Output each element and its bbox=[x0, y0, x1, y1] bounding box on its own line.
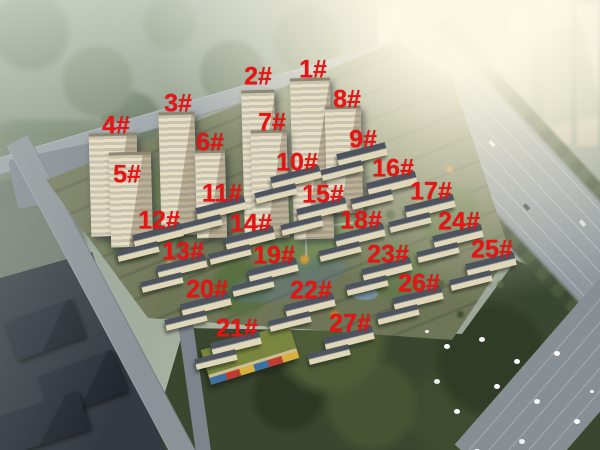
building-label-14#: 14# bbox=[230, 212, 272, 237]
building-label-23#: 23# bbox=[367, 243, 409, 268]
green-trees bbox=[0, 0, 5, 5]
building-label-4#: 4# bbox=[102, 114, 130, 139]
building-label-24#: 24# bbox=[438, 210, 480, 235]
building-label-26#: 26# bbox=[398, 272, 440, 297]
building-label-8#: 8# bbox=[333, 88, 361, 113]
building-label-25#: 25# bbox=[471, 238, 513, 263]
building-label-16#: 16# bbox=[372, 157, 414, 182]
building-label-20#: 20# bbox=[186, 278, 228, 303]
building-label-7#: 7# bbox=[258, 111, 286, 136]
building-label-19#: 19# bbox=[253, 244, 295, 269]
white-birds bbox=[425, 330, 429, 333]
building-label-22#: 22# bbox=[290, 279, 332, 304]
building-label-13#: 13# bbox=[162, 240, 204, 265]
aerial-render: 1#2#3#4#5#6#7#8#9#10#11#12#13#14#15#16#1… bbox=[0, 0, 600, 450]
building-label-12#: 12# bbox=[138, 209, 180, 234]
building-label-11#: 11# bbox=[202, 182, 242, 207]
building-label-10#: 10# bbox=[276, 151, 318, 176]
building-label-15#: 15# bbox=[302, 183, 344, 208]
building-label-17#: 17# bbox=[410, 180, 452, 205]
building-label-21#: 21# bbox=[216, 317, 258, 342]
building-label-2#: 2# bbox=[244, 65, 272, 90]
building-label-1#: 1# bbox=[299, 58, 327, 83]
building-label-9#: 9# bbox=[349, 128, 377, 153]
building-label-5#: 5# bbox=[113, 163, 141, 188]
building-label-18#: 18# bbox=[340, 209, 382, 234]
building-label-27#: 27# bbox=[329, 312, 371, 337]
building-label-6#: 6# bbox=[196, 131, 224, 156]
building-label-3#: 3# bbox=[164, 92, 192, 117]
dark-building bbox=[3, 299, 84, 361]
